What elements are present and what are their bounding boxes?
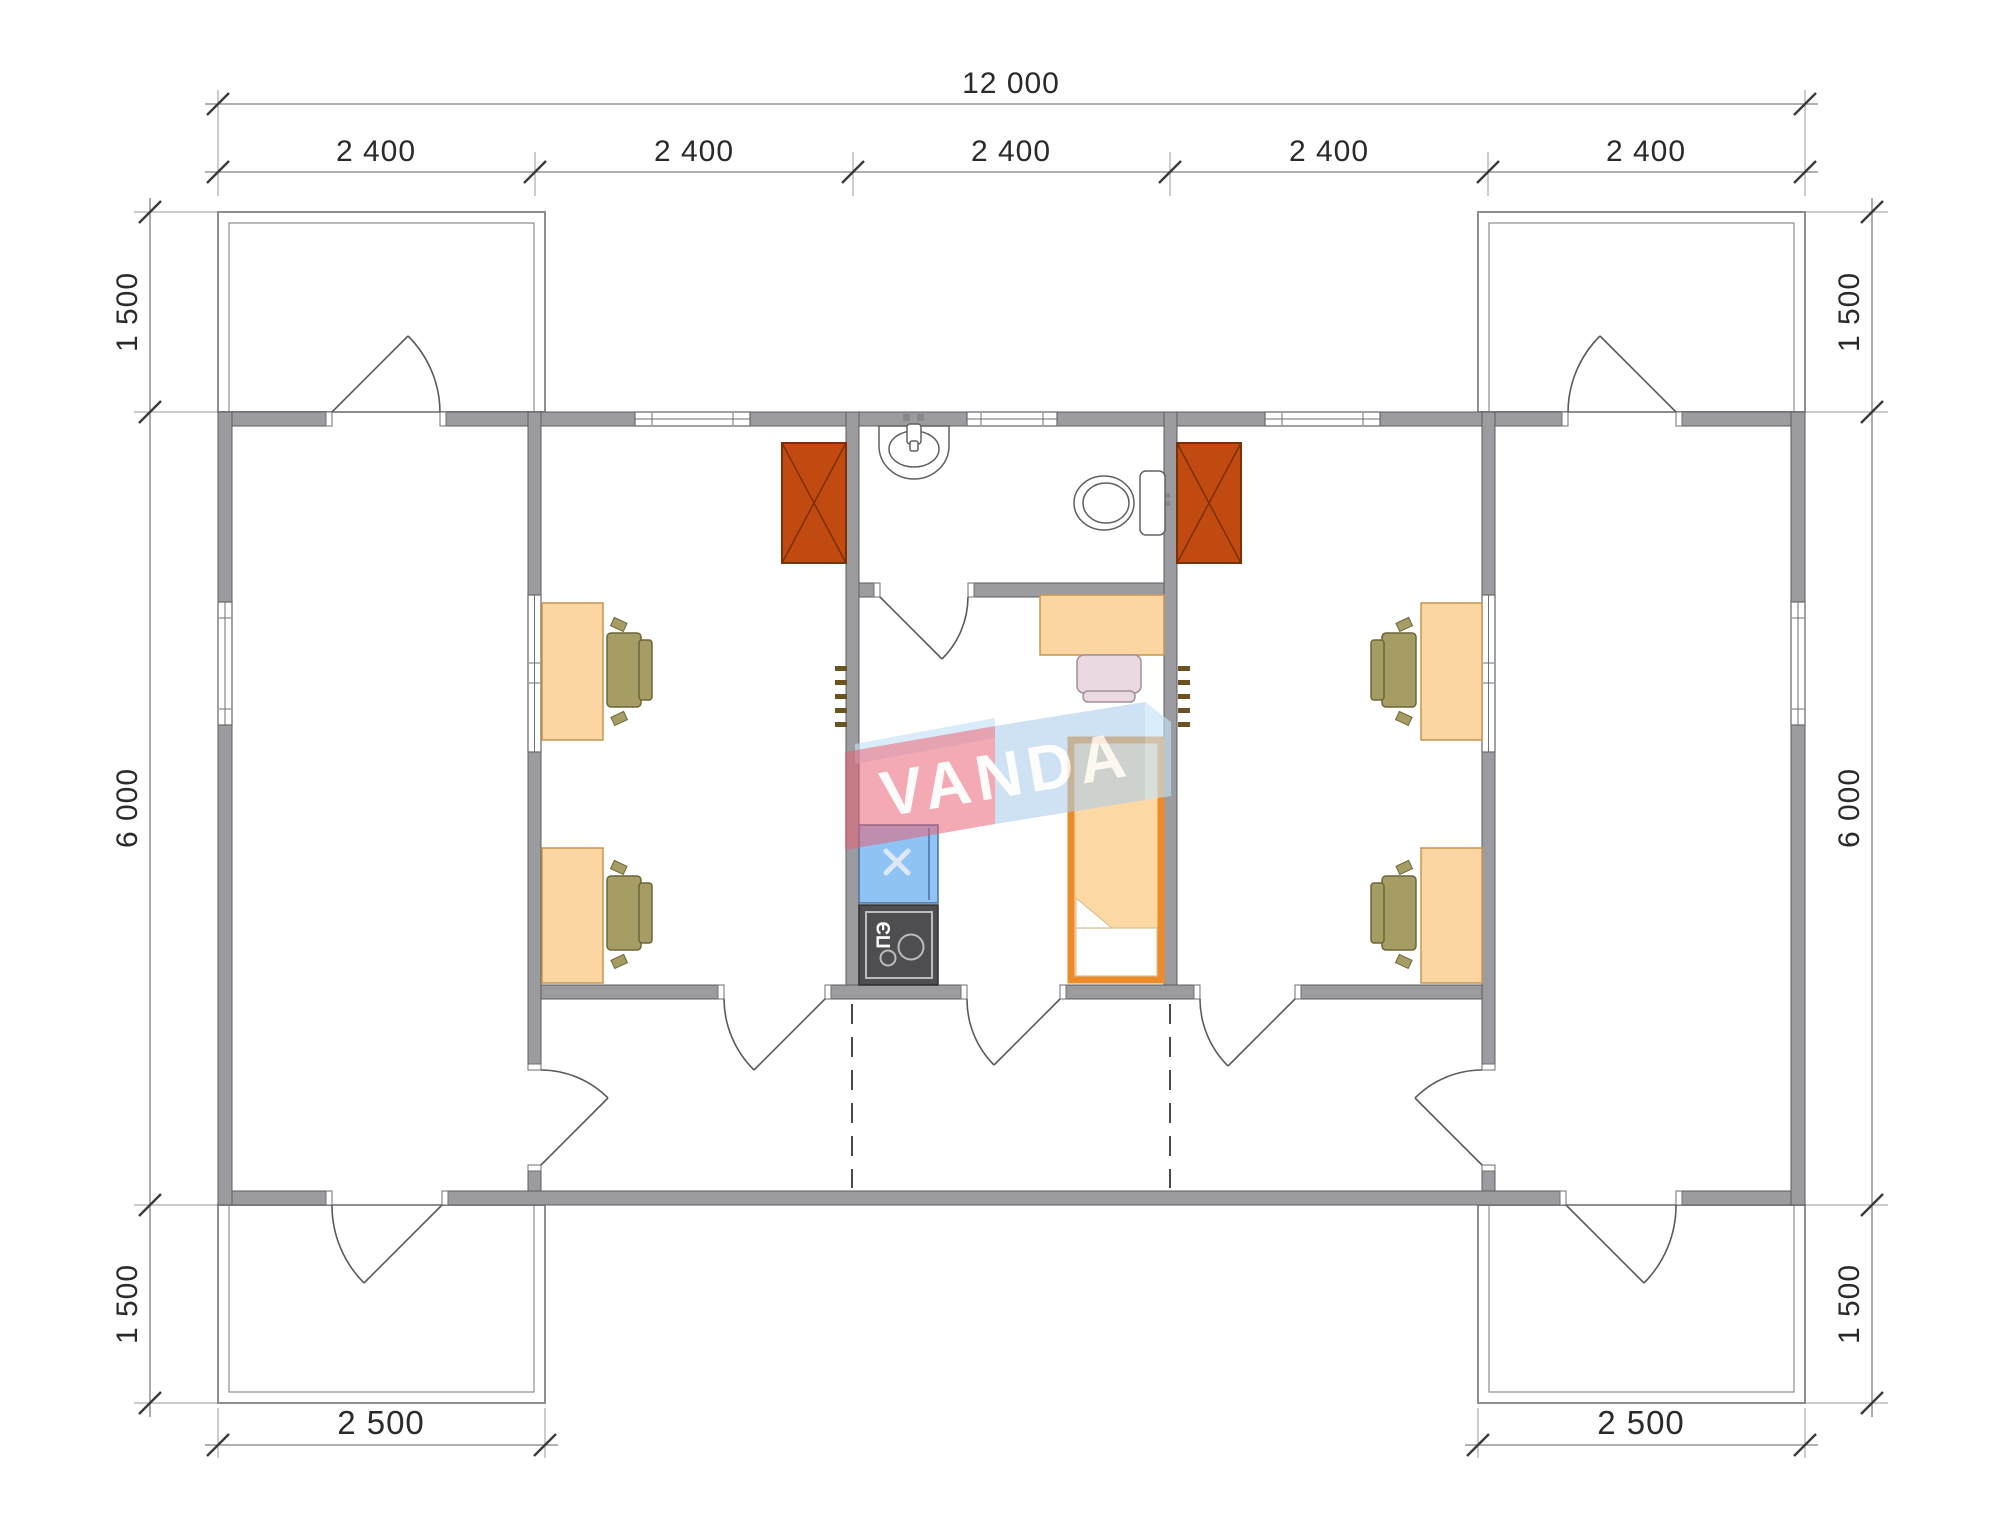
dim-label-bay-3: 2 400	[971, 135, 1051, 168]
storage-unit-right	[1177, 443, 1241, 563]
dimension-porch-bottom-left: 2 500	[205, 1404, 558, 1458]
window-left-office-inner	[528, 595, 541, 752]
dim-label-right-top: 1 500	[1833, 272, 1866, 352]
desk-left-1	[542, 603, 603, 740]
dim-label-bay-1: 2 400	[336, 135, 416, 168]
porch-bottom-right	[1478, 1205, 1805, 1403]
window-top-bathroom	[967, 412, 1057, 426]
door-right-hall-corridor	[1415, 1070, 1482, 1165]
dim-label-bay-5: 2 400	[1606, 135, 1686, 168]
office-chair-left-1	[607, 617, 652, 725]
desk-left-2	[542, 848, 603, 983]
door-left-hall-corridor	[541, 1070, 608, 1165]
office-chair-left-2	[607, 860, 652, 968]
desk-right-1	[1421, 603, 1482, 740]
window-right-office-inner	[1482, 595, 1495, 752]
desk-right-2	[1421, 848, 1482, 983]
dimension-left-side: 1 500 6 000 1 500	[111, 198, 218, 1417]
door-bathroom	[880, 597, 968, 659]
dimension-bays: 2 400 2 400 2 400 2 400 2 400	[205, 135, 1818, 196]
bedroom-chair	[1077, 655, 1141, 702]
window-top-left-office	[635, 412, 750, 426]
floor-plan-canvas: 12 000 2 400 2 400 2 400 2 400 2 400 1 5…	[0, 0, 2000, 1524]
dim-label-left-middle: 6 000	[111, 768, 144, 848]
radiator-right	[1178, 666, 1190, 727]
dim-label-bay-2: 2 400	[654, 135, 734, 168]
storage-unit-left	[782, 443, 846, 563]
door-left-office	[724, 999, 825, 1070]
bedroom-desk	[1040, 595, 1164, 655]
window-right-hall	[1791, 602, 1805, 725]
dim-label-porch-right: 2 500	[1597, 1404, 1685, 1441]
office-chair-right-1	[1371, 617, 1416, 725]
door-right-office	[1200, 999, 1295, 1066]
dimension-overall-width: 12 000	[205, 67, 1818, 196]
office-chair-right-2	[1371, 860, 1416, 968]
door-entry-top-right	[1568, 336, 1676, 412]
dimension-right-side: 1 500 6 000 1 500	[1805, 198, 1888, 1417]
dim-label-right-middle: 6 000	[1833, 768, 1866, 848]
dimension-porch-bottom-right: 2 500	[1465, 1404, 1818, 1458]
floor-plan-drawing: 12 000 2 400 2 400 2 400 2 400 2 400 1 5…	[0, 0, 2000, 1524]
window-left-hall	[218, 602, 232, 725]
door-entry-top-left	[332, 336, 440, 412]
dim-label-left-bottom: 1 500	[111, 1264, 144, 1344]
porch-top-left	[218, 212, 545, 412]
dim-label-right-bottom: 1 500	[1833, 1264, 1866, 1344]
door-kitchen-bedroom	[967, 999, 1060, 1065]
window-top-right-office	[1265, 412, 1380, 426]
stove-label: ПЭ	[874, 921, 895, 948]
door-porch-bottom-left	[332, 1205, 442, 1283]
dim-label-left-top: 1 500	[111, 272, 144, 352]
bed-sheet	[1076, 928, 1157, 976]
electric-stove: ПЭ	[859, 905, 938, 985]
porch-bottom-left	[218, 1205, 545, 1403]
door-porch-bottom-right	[1566, 1205, 1676, 1283]
toilet-icon	[1074, 471, 1170, 535]
dim-label-bay-4: 2 400	[1289, 135, 1369, 168]
dim-label-porch-left: 2 500	[337, 1404, 425, 1441]
porch-top-right	[1478, 212, 1805, 412]
radiator-left	[835, 666, 847, 727]
windows	[218, 412, 1805, 752]
dim-label-overall: 12 000	[962, 67, 1060, 100]
